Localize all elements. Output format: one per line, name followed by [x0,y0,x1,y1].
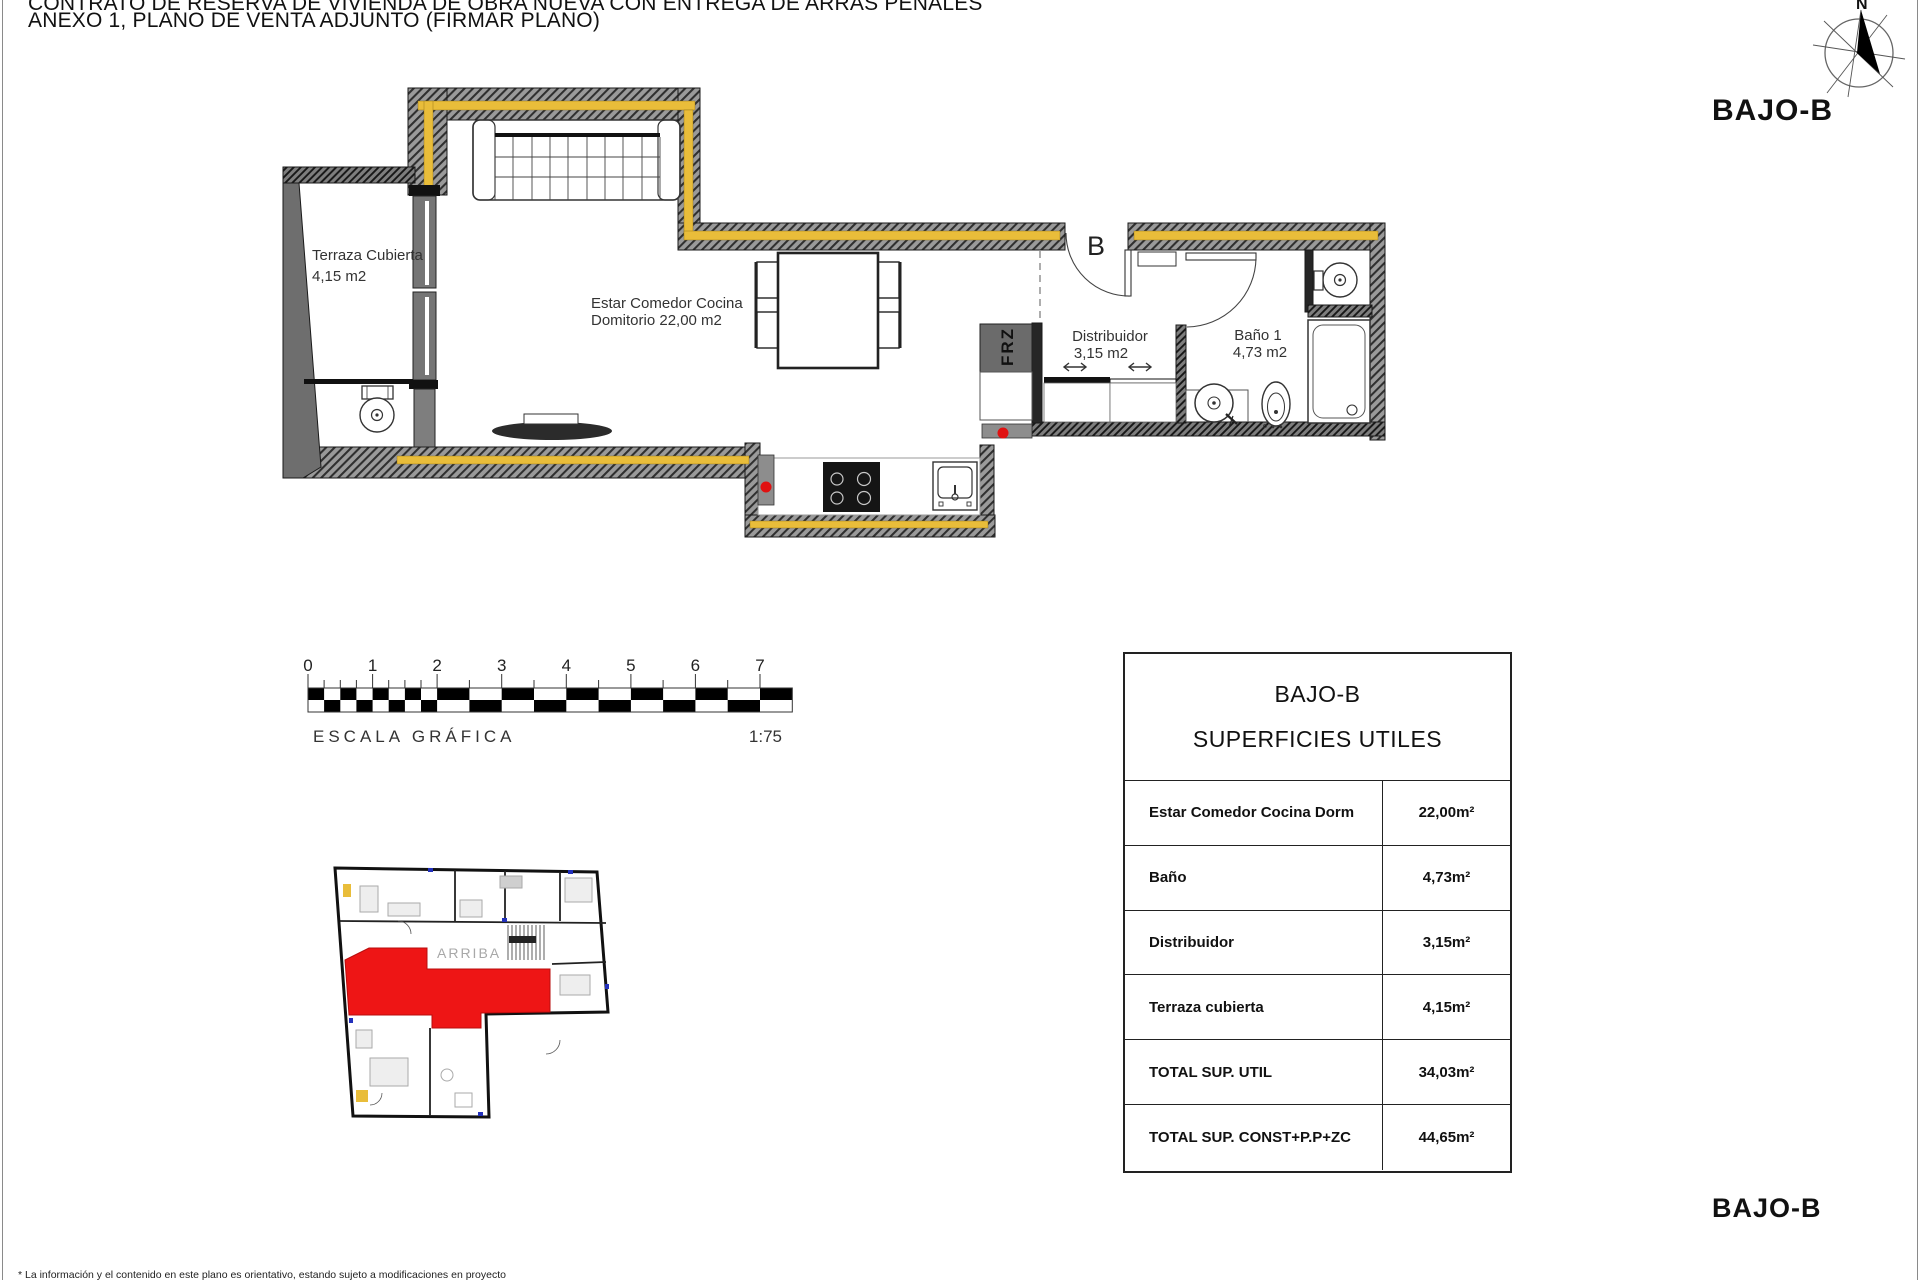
header-line-2: ANEXO 1, PLANO DE VENTA ADJUNTO (FIRMAR … [28,9,600,33]
bathtub-icon [1308,320,1370,423]
unit-label-top: BAJO-B [1712,94,1833,128]
row-value: 34,03m² [1383,1040,1510,1104]
svg-text:6: 6 [691,656,700,675]
row-value: 4,73m² [1383,846,1510,910]
wall-stub-left [758,455,774,505]
entrance-door-label: B [1087,231,1105,261]
estar-line1: Estar Comedor Cocina [591,295,743,312]
svg-text:3: 3 [497,656,506,675]
table-row: TOTAL SUP. CONST+P.P+ZC 44,65m² [1125,1105,1510,1170]
floor-plan: FRZ B [260,70,1420,560]
row-value: 22,00m² [1383,781,1510,845]
distribuidor-closet [1044,377,1176,422]
scale-numbers: 0 1 2 3 4 5 6 7 [303,656,764,675]
table-row: TOTAL SUP. UTIL 34,03m² [1125,1040,1510,1105]
site-stair-label: ARRIBA [437,945,501,961]
table-row: Baño 4,73m² [1125,846,1510,911]
terraza-sliding-door [409,185,440,447]
svg-text:0: 0 [303,656,312,675]
scale-bar: 0 1 2 3 4 5 6 7 [290,645,830,755]
unit-label-bottom: BAJO-B [1712,1193,1822,1224]
row-label: Terraza cubierta [1125,975,1383,1039]
scale-ticks [308,674,760,688]
table-title-unit: BAJO-B [1274,681,1360,708]
kitchen-counter [758,458,980,515]
svg-text:4: 4 [562,656,571,675]
row-label: TOTAL SUP. UTIL [1125,1040,1383,1104]
footnote: * La información y el contenido en este … [18,1269,506,1280]
terraza-name: Terraza Cubierta [312,247,424,264]
row-label: Baño [1125,846,1383,910]
site-plan: ARRIBA [328,860,618,1126]
page-border-right [1917,0,1918,1280]
freezer-label: FRZ [998,327,1017,366]
table-row: Terraza cubierta 4,15m² [1125,975,1510,1040]
row-label: TOTAL SUP. CONST+P.P+ZC [1125,1105,1383,1170]
table-row: Estar Comedor Cocina Dorm 22,00m² [1125,781,1510,846]
bano-area: 4,73 m2 [1233,344,1287,361]
compass-needle-icon [1857,10,1880,74]
svg-text:5: 5 [626,656,635,675]
svg-text:1: 1 [368,656,377,675]
page-border-left [2,0,3,1280]
distribuidor-name: Distribuidor [1072,328,1148,345]
red-marker-kitchen-right [998,428,1009,439]
table-title-caption: SUPERFICIES UTILES [1193,726,1442,753]
bano-name: Baño 1 [1234,327,1282,344]
scale-caption: ESCALA GRÁFICA [313,727,515,746]
sofa-bed [473,120,680,200]
table-row: Distribuidor 3,15m² [1125,911,1510,976]
freezer-unit: FRZ [980,324,1032,420]
svg-text:7: 7 [755,656,764,675]
kitchen-sink-icon [933,462,977,510]
terraza-area: 4,15 m2 [312,268,366,285]
compass-north-label: N [1856,0,1868,13]
red-marker-kitchen-left [761,482,772,493]
row-value: 44,65m² [1383,1105,1510,1170]
surfaces-table: BAJO-B SUPERFICIES UTILES Estar Comedor … [1123,652,1512,1173]
row-label: Distribuidor [1125,911,1383,975]
row-label: Estar Comedor Cocina Dorm [1125,781,1383,845]
scale-ratio: 1:75 [749,727,782,746]
surfaces-table-header: BAJO-B SUPERFICIES UTILES [1125,654,1510,781]
row-value: 3,15m² [1383,911,1510,975]
svg-text:2: 2 [432,656,441,675]
document-page: CONTRATO DE RESERVA DE VIVIENDA DE OBRA … [0,0,1920,1280]
estar-line2: Domitorio 22,00 m2 [591,312,722,329]
scale-checker [308,688,792,712]
distribuidor-area: 3,15 m2 [1074,345,1128,362]
dining-set [756,253,900,368]
row-value: 4,15m² [1383,975,1510,1039]
stove-icon [823,462,880,512]
